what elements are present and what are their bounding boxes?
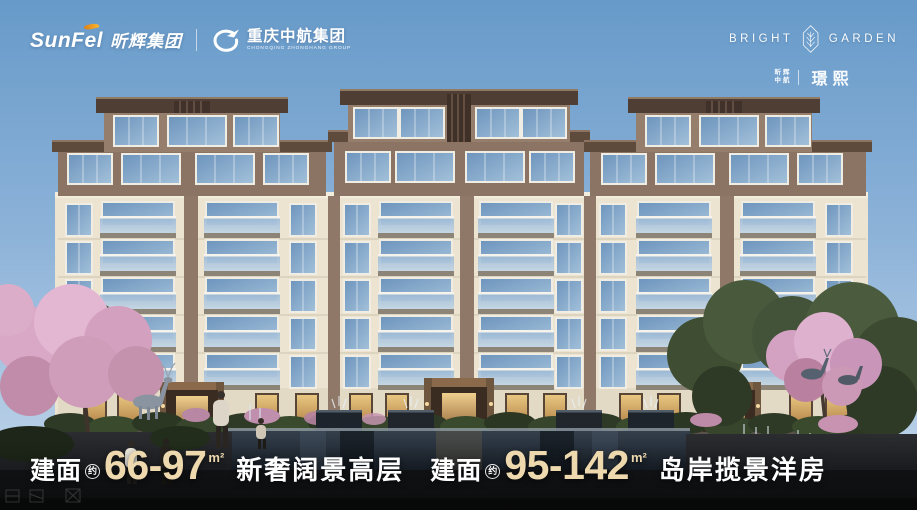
right-tower-top bbox=[584, 97, 872, 196]
area-unit: m² bbox=[631, 450, 647, 465]
left-tower-top bbox=[52, 97, 332, 196]
project-divider bbox=[798, 70, 799, 85]
highrise-tagline-group: 建面 约 66-97 m² 新奢阔景高层 bbox=[30, 442, 404, 489]
footer-taglines: 建面 约 66-97 m² 新奢阔景高层 建面 约 95-142 m² 岛岸揽景… bbox=[30, 442, 827, 489]
mansion-tagline-group: 建面 约 95-142 m² 岛岸揽景洋房 bbox=[430, 442, 827, 489]
area-range: 66-97 bbox=[104, 442, 206, 489]
header-divider bbox=[196, 29, 197, 51]
brand-word-bright: BRIGHT bbox=[729, 33, 793, 45]
zhonghang-group-name: 重庆中航集团 bbox=[247, 29, 351, 45]
area-unit: m² bbox=[208, 450, 224, 465]
project-name-row: 昕辉 中航 璟熙 bbox=[729, 65, 899, 89]
zhonghang-group-name-en: CHONGQING ZHONGHANG GROUP bbox=[247, 47, 351, 52]
header-left-logos: SunFel 昕辉集团 重庆中航集团 CHONGQING ZHONGHANG G… bbox=[30, 27, 351, 53]
zhonghang-logo: 重庆中航集团 CHONGQING ZHONGHANG GROUP bbox=[211, 27, 351, 53]
owner-stack: 昕辉 中航 bbox=[774, 69, 791, 85]
project-name: 璟熙 bbox=[806, 65, 853, 89]
owner-line-1: 昕辉 bbox=[774, 69, 791, 77]
sunfel-group-name: 昕辉集团 bbox=[110, 27, 182, 52]
sunfel-logo: SunFel 昕辉集团 bbox=[30, 27, 182, 53]
brand-word-garden: GARDEN bbox=[829, 33, 899, 45]
brand-row: BRIGHT GARDEN bbox=[729, 16, 899, 62]
center-tower-top bbox=[328, 89, 590, 196]
mansion-description: 岛岸揽景洋房 bbox=[659, 450, 827, 487]
area-label: 建面 bbox=[430, 451, 482, 487]
area-label: 建面 bbox=[30, 451, 82, 487]
approx-badge: 约 bbox=[85, 464, 100, 479]
zhonghang-swirl-icon bbox=[211, 27, 241, 53]
approx-badge: 约 bbox=[485, 464, 500, 479]
garden-emblem-icon bbox=[802, 16, 819, 62]
area-range: 95-142 bbox=[504, 442, 629, 489]
sunfel-logo-text: SunFel bbox=[30, 29, 103, 53]
poster-canvas: SunFel 昕辉集团 重庆中航集团 CHONGQING ZHONGHANG G… bbox=[0, 0, 917, 510]
project-brand-block: BRIGHT GARDEN 昕辉 中航 璟熙 bbox=[729, 16, 899, 89]
highrise-description: 新奢阔景高层 bbox=[236, 450, 404, 487]
owner-line-2: 中航 bbox=[774, 77, 791, 85]
zhonghang-logo-text: 重庆中航集团 CHONGQING ZHONGHANG GROUP bbox=[247, 29, 351, 52]
